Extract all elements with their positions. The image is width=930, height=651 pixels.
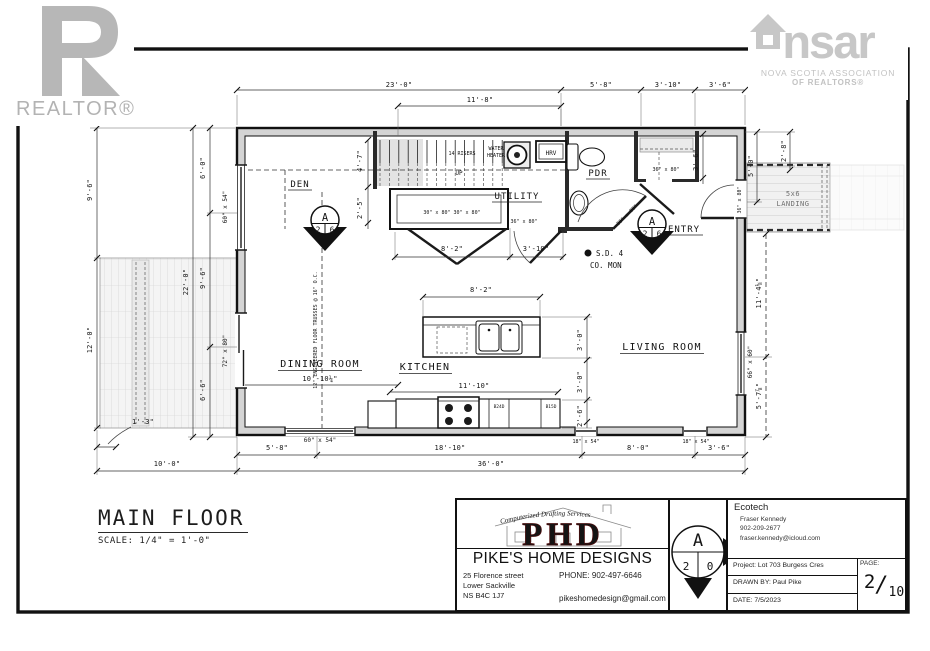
water-heater-label-2: HEATER <box>487 153 506 159</box>
client-name: Ecotech <box>734 502 899 513</box>
marker2-num-right: 6 <box>657 230 662 239</box>
page-slash: / <box>875 573 888 598</box>
water-heater: WATER HEATER <box>487 142 530 168</box>
dim-5-0-right: 5'-0" <box>747 155 755 177</box>
room-entry-label: ENTRY <box>668 225 700 235</box>
hall-door-label: 36" x 80" <box>510 219 537 225</box>
dim-11-10-kitchen: 11'-10" <box>459 382 490 390</box>
cabinet-b15d-label: B15D <box>546 404 557 410</box>
project-info-rows: Project: Lot 703 Burgess Cres DRAWN BY: … <box>728 559 857 610</box>
front-door-label: 36" x 80" <box>737 186 743 213</box>
window-60x54-left-label: 60" x 54" <box>222 191 229 224</box>
dim-23-0: 23'-0" <box>386 81 413 89</box>
dim-8-2-island: 8'-2" <box>470 286 492 294</box>
project-row: Project: Lot 703 Burgess Cres <box>728 559 857 576</box>
dim-5-8-bottom: 5'-8" <box>266 444 288 452</box>
window-60x54-bottom-label: 60" x 54" <box>304 437 337 444</box>
dim-4-7-stair: 4'-7" <box>356 150 364 172</box>
dim-3-10-hall: 3'-10" <box>523 245 550 253</box>
stairs-risers-label: 14 RISERS <box>448 151 475 157</box>
phd-letters: PHD <box>522 517 604 549</box>
nsar-ns-text: ns <box>782 20 833 64</box>
dim-9-6-left: 9'-6" <box>86 179 94 201</box>
landing: 5x6 LANDING <box>747 163 904 232</box>
dim-18-10-bottom: 18'-10" <box>435 444 466 452</box>
pdr-fixtures <box>567 144 605 215</box>
page-title: MAIN FLOOR <box>98 506 248 533</box>
stairs: 14 RISERS UP <box>377 139 502 186</box>
realtor-r-icon <box>32 6 124 100</box>
dim-6-0-left: 6'-0" <box>199 157 207 179</box>
dim-3-10-top: 3'-10" <box>655 81 682 89</box>
landing-label: LANDING <box>776 200 809 208</box>
phd-logo-art: Computerized Drafting Services PHD <box>457 500 668 549</box>
dim-11-8: 11'-8" <box>467 96 494 104</box>
co-label: CO. MON <box>590 261 622 270</box>
room-utility-label: UTILITY <box>495 192 540 202</box>
nsar-logo: ns ar NOVA SCOTIA ASSOCIATION OF REALTOR… <box>748 12 908 100</box>
room-pdr-label: PDR <box>588 169 607 179</box>
nsar-association-text: NOVA SCOTIA ASSOCIATION <box>748 68 908 78</box>
room-kitchen-label: KITCHEN <box>400 362 451 373</box>
realtor-wordmark: REALTOR® <box>16 98 135 121</box>
hrv-unit: HRV <box>536 141 566 162</box>
dim-2-5-stair: 2'-5" <box>356 197 364 219</box>
scale-note: SCALE: 1/4" = 1'-0" <box>98 536 248 546</box>
dim-22-0-left: 22'-0" <box>182 269 190 296</box>
title-block: Computerized Drafting Services PHD PIKE'… <box>455 498 907 612</box>
phd-logo: Computerized Drafting Services PHD <box>457 500 668 549</box>
dim-36-0-bottom: 36'-0" <box>478 460 505 468</box>
marker2-letter: A <box>649 216 656 228</box>
drawn-by-row: DRAWN BY: Paul Pike <box>728 576 857 593</box>
tb-marker-letter: A <box>693 531 703 551</box>
client-phone: 902-209-2677 <box>740 525 899 532</box>
section-marker-1: A 2 6 <box>303 206 347 251</box>
smoke-detector-note: S.D. 4 CO. MON <box>585 249 624 270</box>
dim-3-6-entry: 3'-6" <box>692 149 700 171</box>
landing-size-label: 5x6 <box>786 190 800 198</box>
ghost-steps <box>830 165 904 230</box>
page-current: 2 <box>864 571 875 593</box>
page-label: PAGE: <box>860 560 879 567</box>
room-den-label: DEN <box>290 180 309 190</box>
client-contact: Fraser Kennedy <box>740 516 899 523</box>
page-total: 10 <box>889 585 905 600</box>
company-email: pikeshomedesign@gmail.com <box>559 594 666 604</box>
dim-5-7-right: 5'-7⅞" <box>755 383 763 410</box>
client-block: Ecotech Fraser Kennedy 902-209-2677 fras… <box>728 500 905 559</box>
dim-3-6-top: 3'-6" <box>709 81 731 89</box>
section-marker-2: A 2 6 <box>630 210 674 255</box>
stairs-up-label: UP <box>455 170 463 177</box>
dim-8-0-bottom: 8'-0" <box>627 444 649 452</box>
marker1-letter: A <box>322 212 329 224</box>
drawing-title-block: MAIN FLOOR SCALE: 1/4" = 1'-0" <box>98 506 248 546</box>
closet-door-label: 36" x 80" <box>652 167 679 173</box>
client-email: fraser.kennedy@icloud.com <box>740 535 899 542</box>
marker1-num-left: 2 <box>316 226 321 235</box>
dim-5-8-top: 5'-8" <box>590 81 612 89</box>
cabinet-b24d-label: B24D <box>494 404 505 410</box>
hrv-label: HRV <box>546 150 557 157</box>
room-dining-label: DINING ROOM <box>280 359 359 370</box>
title-block-project: Ecotech Fraser Kennedy 902-209-2677 fras… <box>728 500 905 610</box>
title-block-company: Computerized Drafting Services PHD PIKE'… <box>457 500 670 610</box>
door-72x80-left-label: 72" x 80" <box>222 335 229 368</box>
kitchen-island <box>423 317 540 357</box>
dim-9-6-left2: 9'-6" <box>199 267 207 289</box>
dim-3-0-gap: 3'-0" <box>576 371 584 393</box>
dim-1-3: 1'-3" <box>132 418 154 426</box>
dim-3-0-island: 3'-0" <box>576 329 584 351</box>
dim-6-6-left: 6'-6" <box>199 379 207 401</box>
realtor-logo: REALTOR® <box>14 2 134 126</box>
entry-closet <box>640 138 693 214</box>
fridge <box>368 401 396 428</box>
room-living-label: LIVING ROOM <box>622 342 701 353</box>
kitchen-counter: B24D B15D <box>368 397 560 428</box>
section-marker-legend: A 2 0 <box>670 500 726 610</box>
stove <box>438 397 479 428</box>
drawing-sheet: 5x6 LANDING <box>0 0 930 651</box>
date-row: DATE: 7/5/2023 <box>728 594 857 610</box>
dim-2-6-counter: 2'-6" <box>576 405 584 427</box>
dim-12-0-left: 12'-0" <box>86 327 94 354</box>
dining-size-label: 10'-10¼" <box>302 375 337 383</box>
nsar-ar-text: ar <box>833 20 873 64</box>
nsar-of-realtors-text: OF REALTORS® <box>748 78 908 87</box>
title-block-marker: A 2 0 <box>670 500 728 610</box>
tb-marker-num-right: 0 <box>707 560 714 573</box>
company-phone: PHONE: 902-497-6646 <box>559 571 642 581</box>
dim-3-6-bottom: 3'-6" <box>708 444 730 452</box>
floor-truss-note: 12" ENGINEERED FLOOR TRUSSES @ 16" O.C. <box>313 271 319 388</box>
marker1-num-right: 6 <box>330 226 335 235</box>
address-line-2: Lower Sackville <box>463 581 668 591</box>
water-heater-label-1: WATER <box>488 146 504 152</box>
company-name: PIKE'S HOME DESIGNS <box>457 550 668 568</box>
dim-2-8-right: 2'-8" <box>780 140 788 162</box>
pdr-door-label: 36" x 80" <box>616 204 639 227</box>
dim-10-0-bottom: 10'-0" <box>154 460 181 468</box>
company-address: 25 Florence street Lower Sackville NS B4… <box>457 568 668 601</box>
window-18x54-b-label: 18" x 54" <box>682 439 709 445</box>
window-66x60-right-label: 66" x 60" <box>747 346 754 379</box>
nsar-house-icon <box>749 12 787 50</box>
window-18x54-a-label: 18" x 54" <box>572 439 599 445</box>
utility-doors-label: 30" x 80" 30" x 80" <box>423 210 480 216</box>
sd-label: S.D. 4 <box>596 249 624 258</box>
dim-8-2-hall: 8'-2" <box>441 245 463 253</box>
tb-marker-num-left: 2 <box>683 560 690 573</box>
page-number-box: PAGE: 2/10 <box>857 559 905 610</box>
deck <box>100 258 237 428</box>
dim-11-4-right: 11'-4⅛" <box>754 278 763 309</box>
marker2-num-left: 2 <box>643 230 648 239</box>
page-number: 2/10 <box>862 571 906 600</box>
